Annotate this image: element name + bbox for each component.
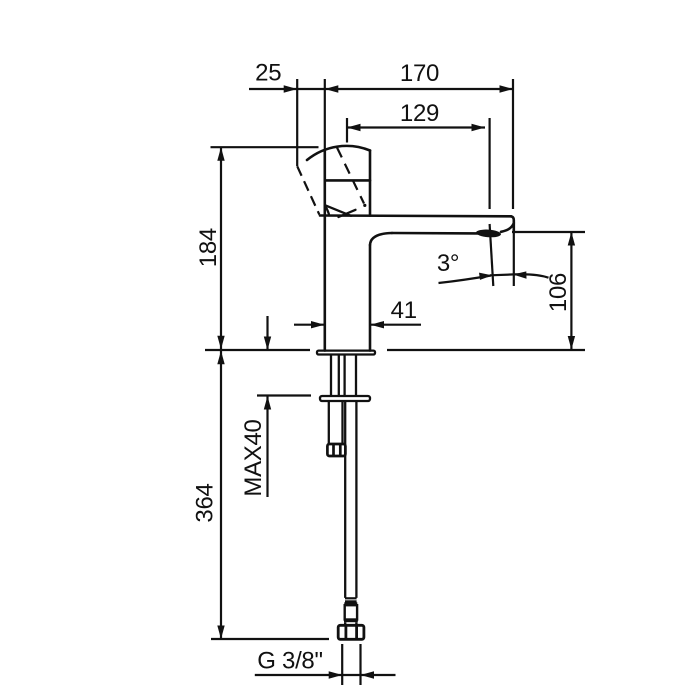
svg-text:170: 170	[400, 60, 439, 87]
svg-text:41: 41	[391, 297, 417, 324]
svg-text:184: 184	[195, 228, 222, 267]
svg-text:129: 129	[400, 100, 439, 127]
svg-text:25: 25	[255, 60, 281, 87]
svg-text:364: 364	[191, 483, 218, 522]
svg-text:MAX40: MAX40	[240, 419, 267, 496]
svg-text:G 3/8": G 3/8"	[257, 647, 322, 674]
svg-text:3°: 3°	[437, 250, 459, 277]
svg-text:106: 106	[545, 273, 572, 312]
